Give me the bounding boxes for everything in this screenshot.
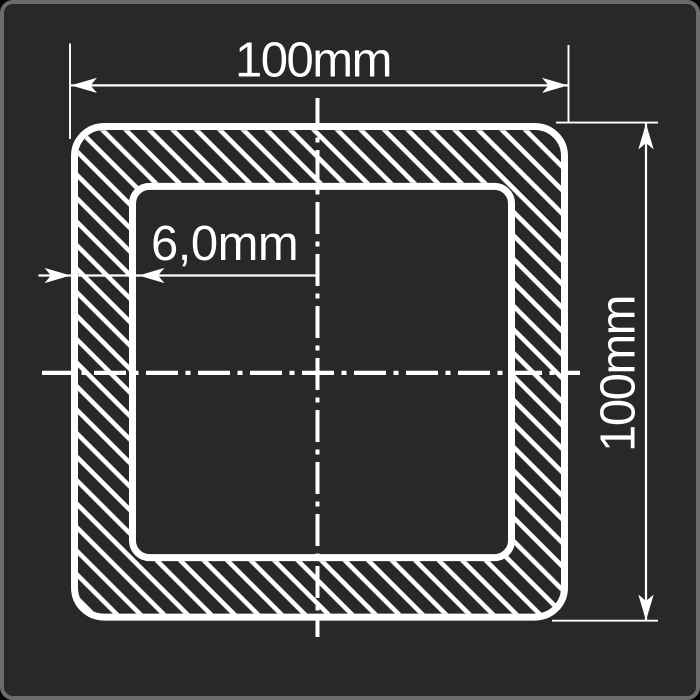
svg-text:100mm: 100mm — [235, 33, 391, 87]
svg-text:100mm: 100mm — [592, 296, 646, 452]
svg-text:6,0mm: 6,0mm — [151, 217, 298, 271]
